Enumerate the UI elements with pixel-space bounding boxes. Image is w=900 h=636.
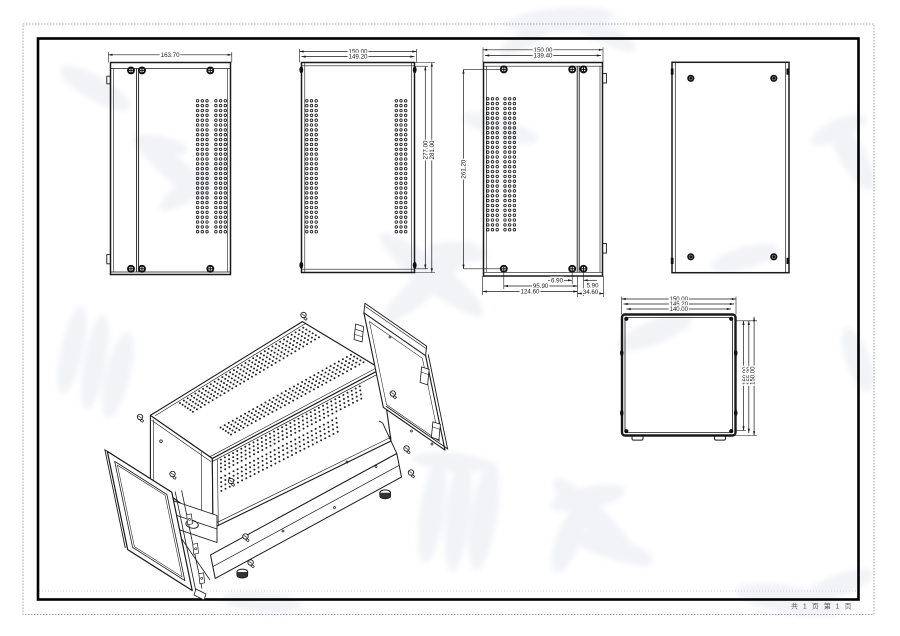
svg-text:261.20: 261.20 <box>461 159 468 178</box>
svg-text:149.20: 149.20 <box>349 54 368 61</box>
svg-text:163.70: 163.70 <box>161 52 180 59</box>
svg-text:150.00: 150.00 <box>751 366 757 385</box>
svg-text:124.60: 124.60 <box>521 289 540 296</box>
svg-text:140.00: 140.00 <box>670 307 689 313</box>
svg-text:共 1 页 第 1 页: 共 1 页 第 1 页 <box>791 602 853 611</box>
svg-text:6.90: 6.90 <box>551 277 564 284</box>
svg-text:34.60: 34.60 <box>583 289 599 296</box>
svg-text:139.40: 139.40 <box>534 53 553 60</box>
svg-text:281.00: 281.00 <box>429 140 436 159</box>
